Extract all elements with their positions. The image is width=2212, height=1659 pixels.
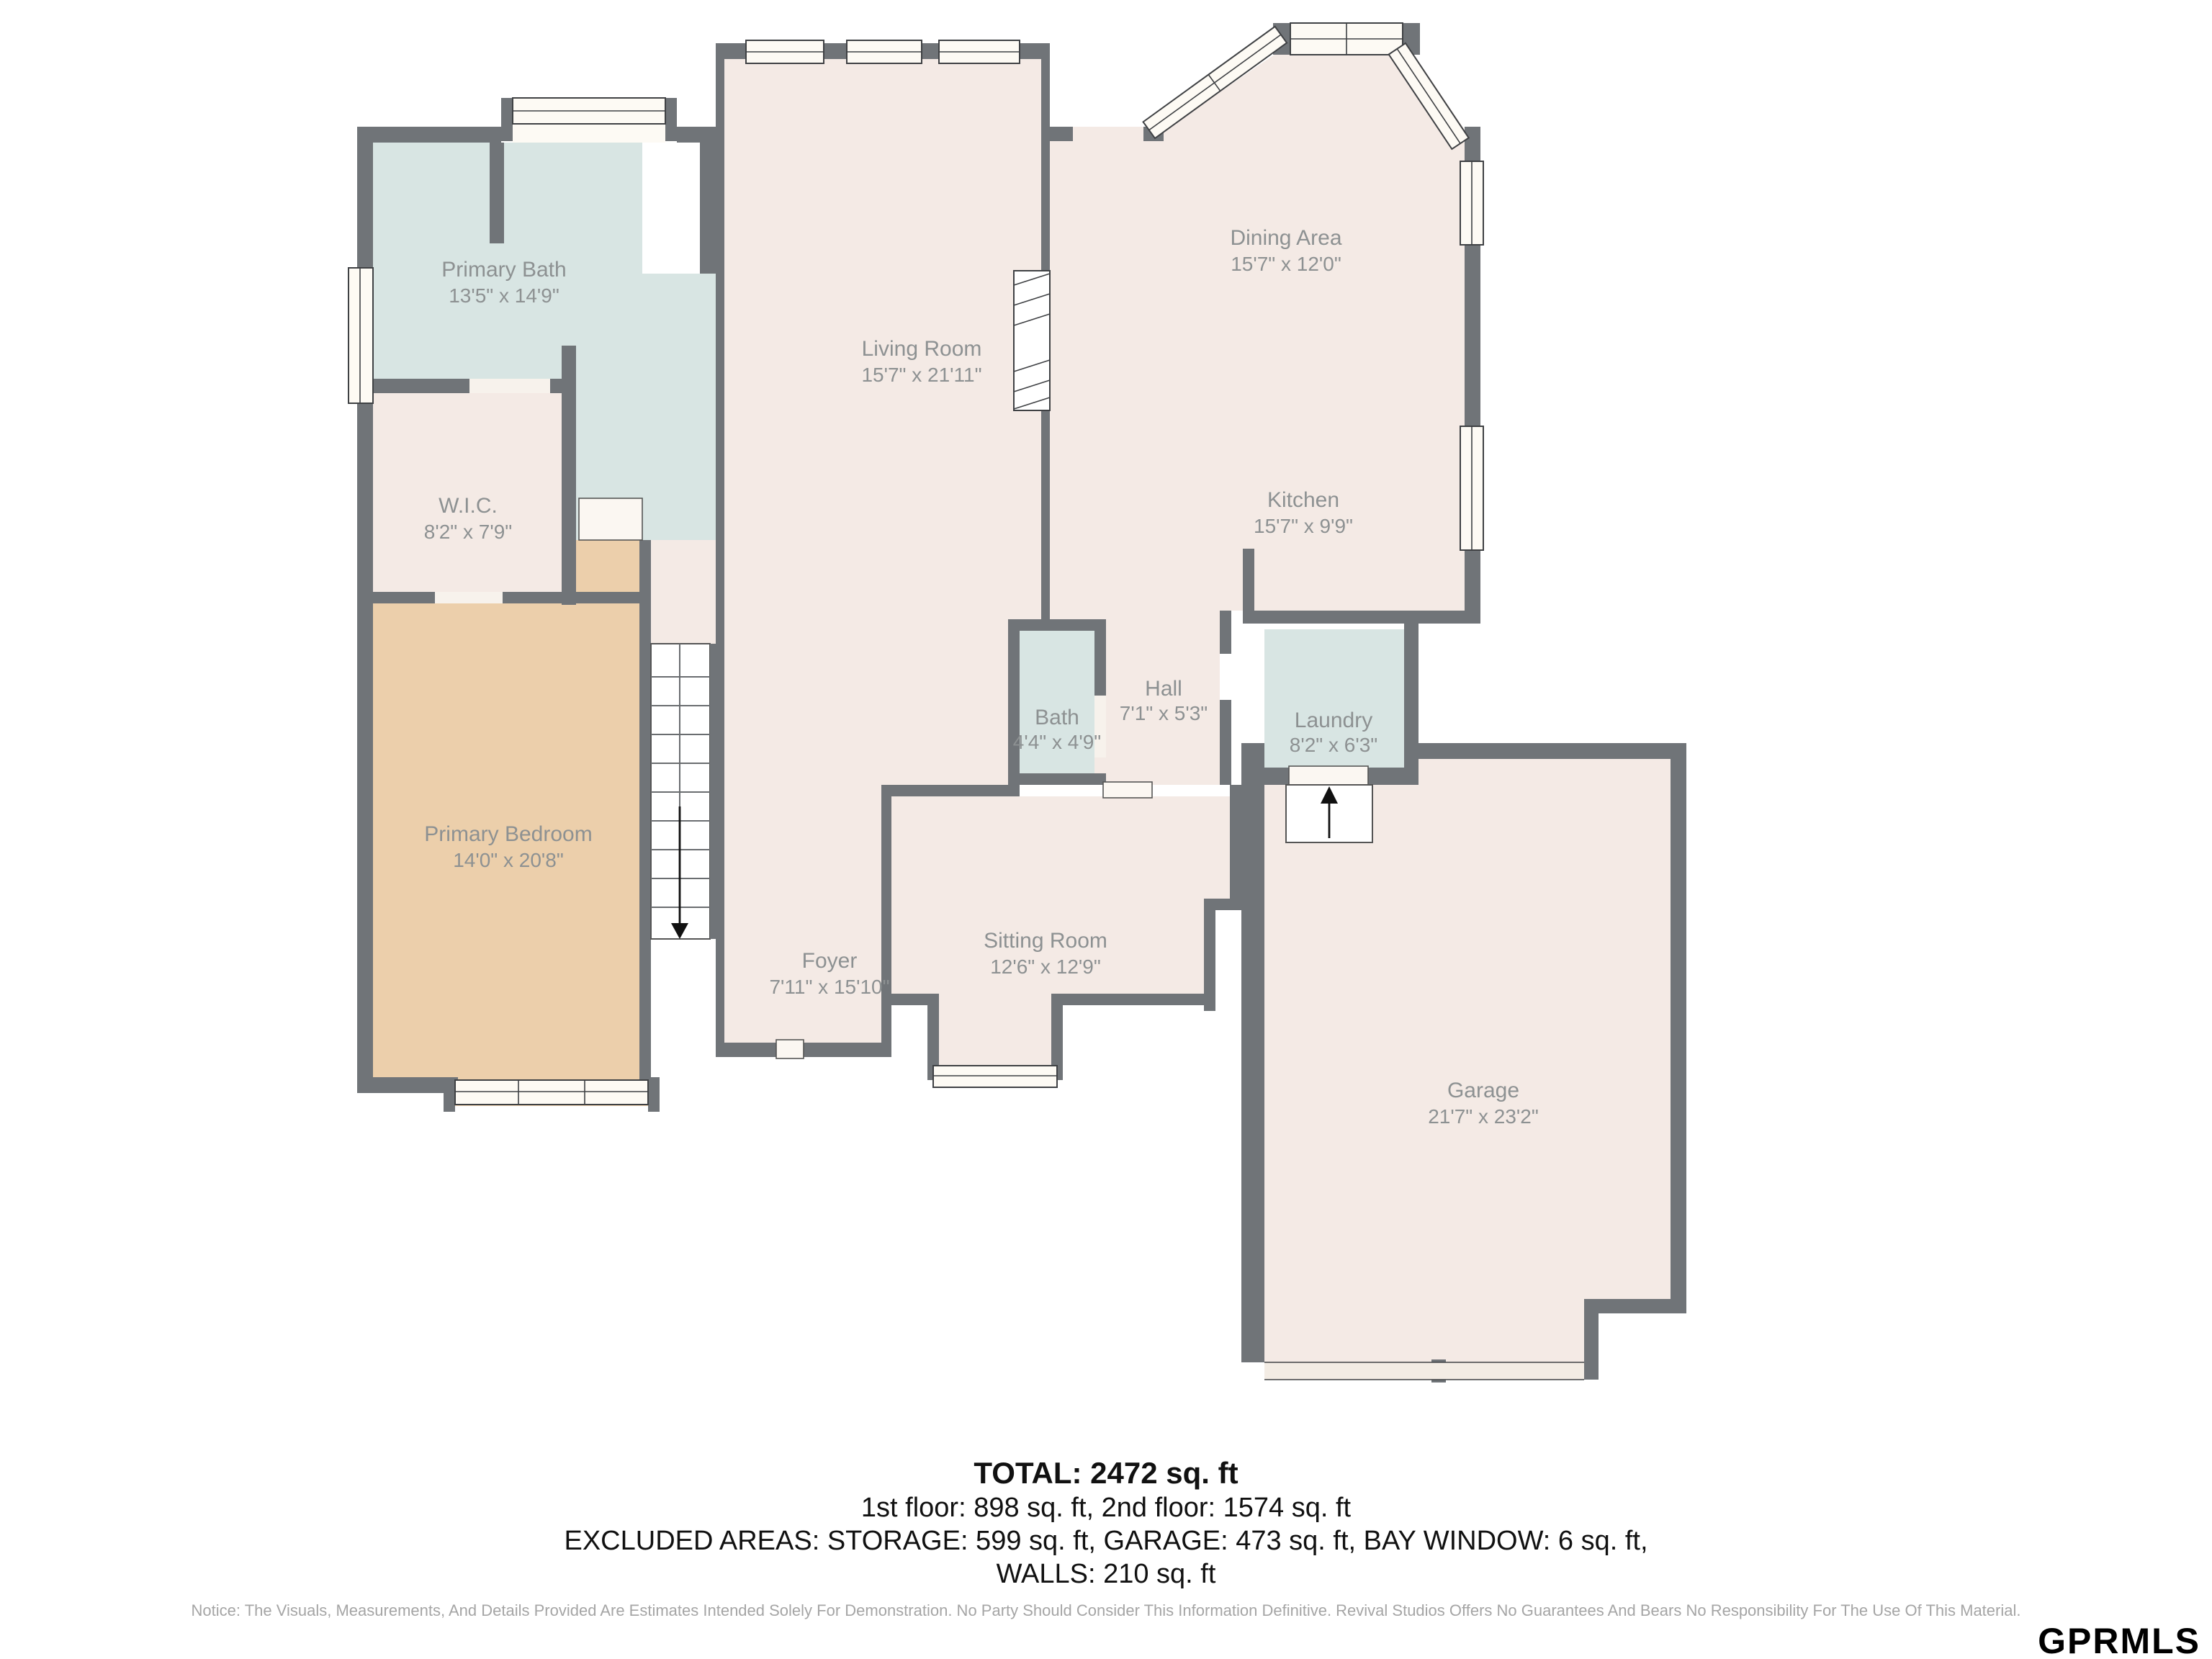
svg-text:14'0" x 20'8": 14'0" x 20'8"	[453, 849, 564, 871]
svg-text:7'11" x 15'10": 7'11" x 15'10"	[769, 976, 889, 998]
label-primary-bath: Primary Bath	[441, 258, 566, 282]
garage-entry-step	[1286, 785, 1372, 842]
svg-text:15'7" x 21'11": 15'7" x 21'11"	[861, 364, 981, 386]
front-door-sill	[776, 1040, 804, 1058]
label-living-room: Living Room	[862, 337, 982, 361]
svg-text:21'7" x 23'2": 21'7" x 23'2"	[1428, 1105, 1539, 1128]
garage-door	[1264, 1362, 1584, 1380]
room-primary-bedroom	[373, 540, 639, 1077]
label-garage: Garage	[1447, 1079, 1519, 1102]
door-sill-bedroom	[579, 498, 642, 540]
door-sill-garage-entry	[1289, 766, 1368, 785]
summary-excluded: EXCLUDED AREAS: STORAGE: 599 sq. ft, GAR…	[564, 1526, 1647, 1556]
svg-text:12'6" x 12'9": 12'6" x 12'9"	[990, 956, 1101, 978]
svg-text:7'1" x 5'3": 7'1" x 5'3"	[1120, 702, 1208, 724]
door-sill-sitting	[1103, 782, 1152, 798]
svg-text:4'4" x 4'9": 4'4" x 4'9"	[1013, 731, 1101, 753]
disclaimer-notice: Notice: The Visuals, Measurements, And D…	[192, 1601, 2021, 1619]
gprmls-logo: GPRMLS	[2038, 1621, 2200, 1659]
svg-text:8'2" x 7'9": 8'2" x 7'9"	[424, 521, 512, 543]
fireplace	[1014, 271, 1050, 410]
door-opening	[469, 379, 550, 393]
label-hall: Hall	[1145, 677, 1182, 701]
svg-text:8'2" x 6'3": 8'2" x 6'3"	[1290, 734, 1377, 756]
room-wic	[373, 393, 562, 592]
floor-plan-canvas: Primary Bath 13'5" x 14'9" W.I.C. 8'2" x…	[0, 0, 2212, 1659]
label-dining-area: Dining Area	[1230, 226, 1341, 250]
summary-total: TOTAL: 2472 sq. ft	[974, 1456, 1238, 1490]
summary-floors: 1st floor: 898 sq. ft, 2nd floor: 1574 s…	[861, 1493, 1352, 1523]
label-laundry: Laundry	[1295, 709, 1372, 732]
floor-plan-page: Primary Bath 13'5" x 14'9" W.I.C. 8'2" x…	[0, 0, 2212, 1659]
label-primary-bedroom: Primary Bedroom	[424, 822, 592, 846]
area-summary: TOTAL: 2472 sq. ft 1st floor: 898 sq. ft…	[564, 1456, 1647, 1589]
room-garage	[1264, 759, 1671, 1362]
door-opening	[435, 592, 503, 603]
label-foyer: Foyer	[802, 949, 858, 973]
label-kitchen: Kitchen	[1267, 488, 1339, 512]
label-bath: Bath	[1035, 706, 1079, 729]
summary-walls: WALLS: 210 sq. ft	[997, 1559, 1216, 1589]
label-sitting-room: Sitting Room	[984, 929, 1107, 953]
label-wic: W.I.C.	[439, 494, 498, 518]
room-stair-landing	[651, 540, 724, 644]
svg-text:15'7" x 12'0": 15'7" x 12'0"	[1231, 253, 1341, 275]
svg-text:15'7" x 9'9": 15'7" x 9'9"	[1254, 515, 1353, 537]
svg-text:13'5" x 14'9": 13'5" x 14'9"	[449, 284, 559, 307]
staircase	[651, 644, 716, 939]
